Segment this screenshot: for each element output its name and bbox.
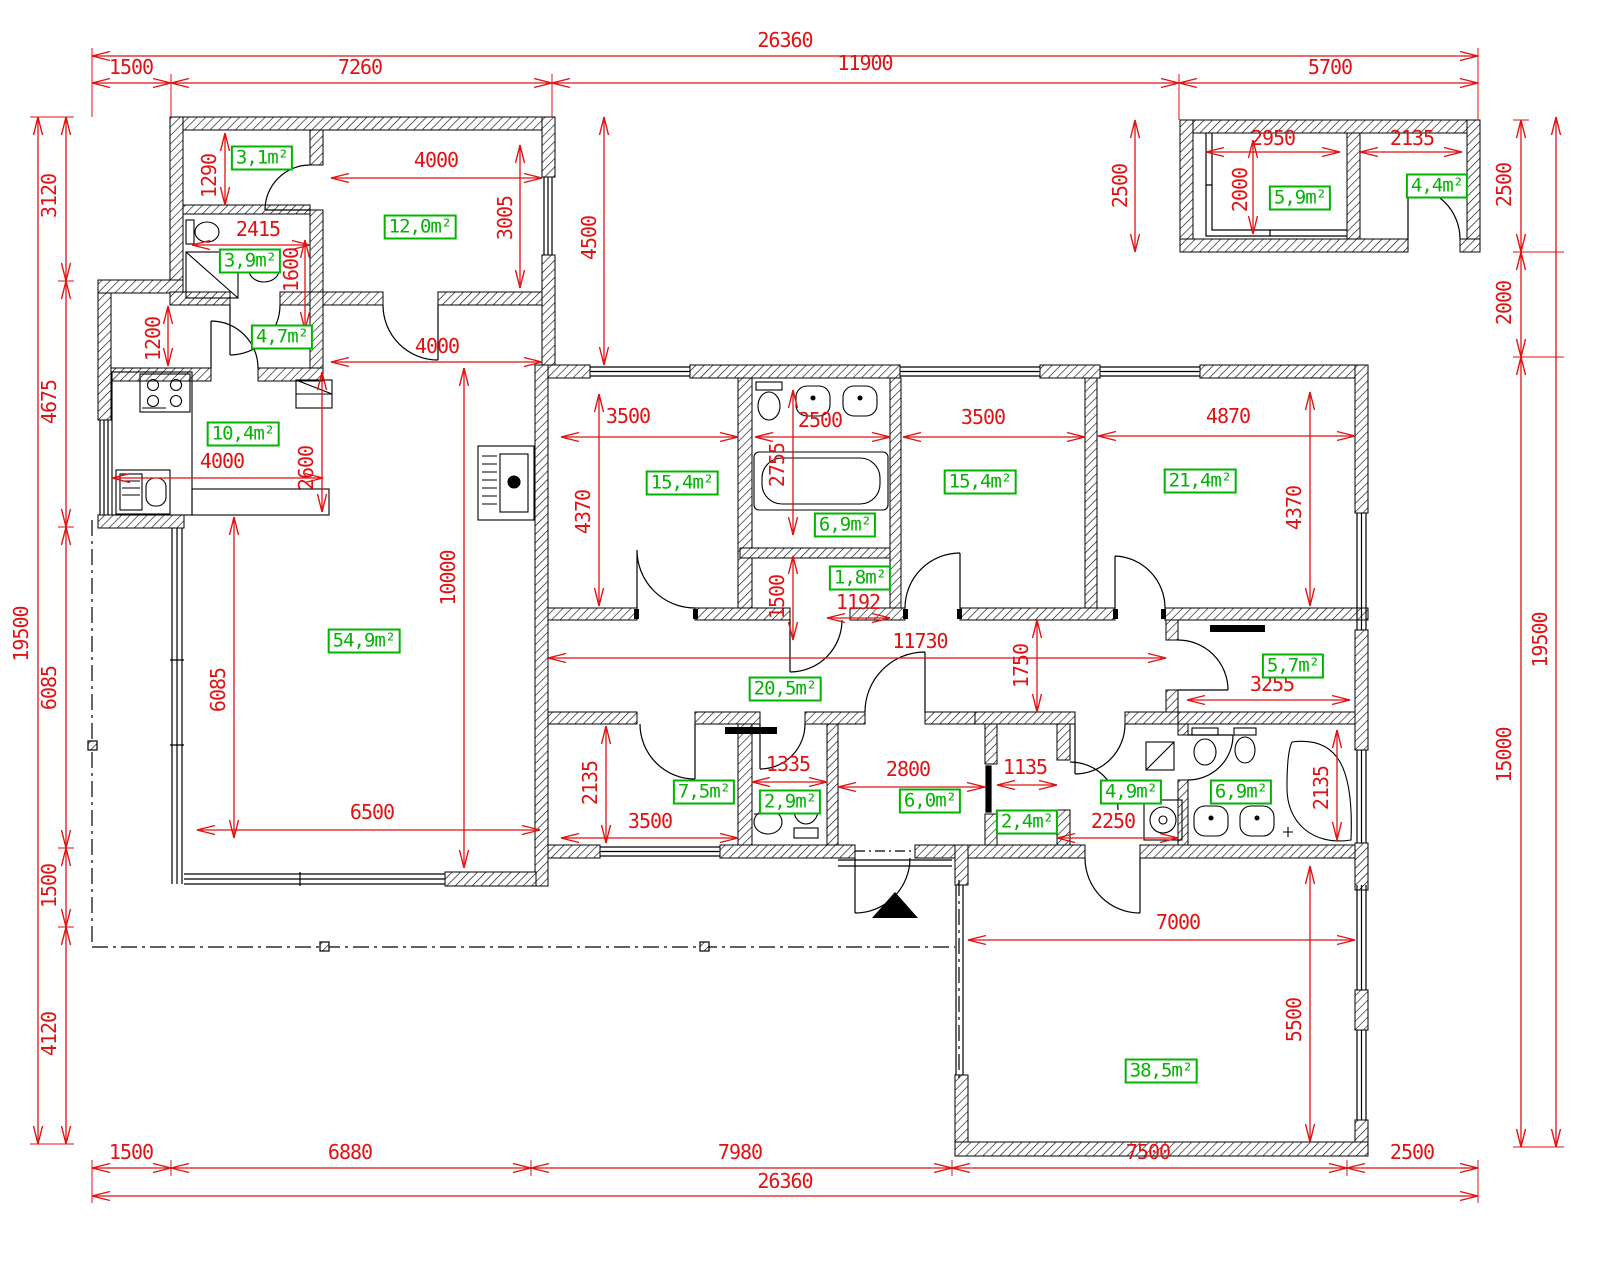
- door-vestibule-corridor: [865, 652, 925, 712]
- area-annex-b: 4,4m²: [1406, 174, 1468, 199]
- dim-top-7260: 7260: [338, 57, 382, 77]
- cabinet-hall49: [1146, 742, 1174, 770]
- dim-bed2-3500: 3500: [961, 407, 1005, 427]
- area-pantry: 3,1m²: [231, 146, 293, 171]
- area-room75: 7,5m²: [673, 780, 735, 805]
- dim-bottom-6880: 6880: [328, 1142, 372, 1162]
- dim-block-2415: 2415: [236, 219, 280, 239]
- door-bed2: [905, 553, 960, 608]
- dim-living-6500: 6500: [350, 802, 394, 822]
- dim-annex-2500: 2500: [1110, 164, 1130, 208]
- dim-room75-2135: 2135: [580, 761, 600, 805]
- dim-room24-1135: 1135: [1003, 757, 1047, 777]
- sink2-bath2: [843, 386, 877, 416]
- dim-bath2-2135: 2135: [1311, 766, 1331, 810]
- area-bed2: 15,4m²: [944, 470, 1017, 495]
- bidet: [1234, 728, 1256, 763]
- area-bath3: 6,9m²: [1210, 780, 1272, 805]
- toilet-bath2: [756, 382, 782, 420]
- shelf-symbol: [296, 380, 332, 408]
- area-room24: 2,4m²: [996, 810, 1058, 835]
- dim-garage-5500: 5500: [1284, 998, 1304, 1042]
- dim-corridor-1750: 1750: [1011, 644, 1031, 688]
- door-closet: [790, 620, 842, 672]
- area-hall: 4,7m²: [251, 325, 313, 350]
- dim-bottom-1500: 1500: [109, 1142, 153, 1162]
- dim-bottom-2500: 2500: [1390, 1142, 1434, 1162]
- dim-room75-3500: 3500: [628, 811, 672, 831]
- dim-bath-2500: 2500: [798, 410, 842, 430]
- dim-closet-1500: 1500: [767, 575, 787, 619]
- dim-living-10000: 10000: [438, 550, 458, 605]
- dim-kitchen-2600: 2600: [296, 446, 316, 490]
- pocket-door: [986, 766, 991, 812]
- dim-bottom-7980: 7980: [718, 1142, 762, 1162]
- sink1-bath3: [1194, 806, 1228, 836]
- dim-bottom-total: 26360: [757, 1171, 812, 1191]
- dim-block-4000: 4000: [414, 150, 458, 170]
- dim-left-6085: 6085: [39, 666, 59, 710]
- dim-left-1500: 1500: [39, 864, 59, 908]
- door-bed1: [637, 550, 695, 608]
- area-hall2: 4,9m²: [1100, 780, 1162, 805]
- dim-right-2500: 2500: [1494, 163, 1514, 207]
- dim-left-3120: 3120: [39, 174, 59, 218]
- dim-annex-2950: 2950: [1251, 128, 1295, 148]
- dim-bath-2755: 2755: [767, 443, 787, 487]
- dim-block-1600: 1600: [281, 248, 301, 292]
- dim-vest-2800: 2800: [886, 759, 930, 779]
- dim-annex-2135: 2135: [1390, 128, 1434, 148]
- area-room57: 5,7m²: [1262, 654, 1324, 679]
- dim-block-4500: 4500: [579, 216, 599, 260]
- toilet-bath3: [1192, 728, 1218, 765]
- dim-bottom-7500: 7500: [1126, 1142, 1170, 1162]
- area-room12: 12,0m²: [384, 215, 457, 240]
- sink2-bath3: [1240, 806, 1274, 836]
- dim-top-11900: 11900: [837, 53, 892, 73]
- dim-right-total: 19500: [1530, 612, 1550, 667]
- floor-plan: 26360 1500 7260 11900 5700 1500 6880 798…: [0, 0, 1600, 1280]
- dim-hall-1200: 1200: [143, 317, 163, 361]
- area-corridor: 20,5m²: [749, 677, 822, 702]
- dim-bed1-3500: 3500: [606, 406, 650, 426]
- dim-top-5700: 5700: [1308, 57, 1352, 77]
- area-closet: 1,8m²: [829, 566, 891, 591]
- floorplan-canvas: [0, 0, 1600, 1280]
- washer: [1144, 800, 1182, 840]
- dim-left-4675: 4675: [39, 380, 59, 424]
- dim-wc-1335: 1335: [766, 754, 810, 774]
- dim-annex-2000: 2000: [1230, 168, 1250, 212]
- door-garage: [1085, 858, 1140, 913]
- area-wc: 2,9m²: [759, 790, 821, 815]
- toilet-bath1: [186, 220, 219, 244]
- area-living: 54,9m²: [328, 629, 401, 654]
- dim-left-total: 19500: [11, 606, 31, 661]
- dim-hall49-2250: 2250: [1091, 811, 1135, 831]
- door-pantry: [265, 165, 310, 210]
- dim-block-1290: 1290: [199, 154, 219, 198]
- area-bath2: 6,9m²: [814, 513, 876, 538]
- door-bed3: [1115, 556, 1165, 608]
- entrance-arrow: [872, 892, 918, 918]
- dim-garage-7000: 7000: [1156, 912, 1200, 932]
- dim-right-2000: 2000: [1494, 281, 1514, 325]
- area-garage: 38,5m²: [1125, 1059, 1198, 1084]
- area-bed1: 15,4m²: [646, 471, 719, 496]
- area-kitchen: 10,4m²: [207, 422, 280, 447]
- dim-top-1500: 1500: [109, 57, 153, 77]
- area-bath1: 3,9m²: [219, 249, 281, 274]
- dim-hall-4000: 4000: [415, 336, 459, 356]
- dim-left-4120: 4120: [39, 1012, 59, 1056]
- fireplace: [478, 446, 534, 520]
- area-bed3: 21,4m²: [1164, 469, 1237, 494]
- dim-right-15000: 15000: [1494, 727, 1514, 782]
- dim-bed1-4370: 4370: [573, 490, 593, 534]
- door-room57: [1178, 640, 1228, 690]
- area-vestibule: 6,0m²: [899, 789, 961, 814]
- area-annex-a: 5,9m²: [1269, 186, 1331, 211]
- dim-top-total: 26360: [757, 30, 812, 50]
- fixtures: [112, 220, 1351, 841]
- dim-block-3005: 3005: [495, 196, 515, 240]
- dim-kitchen-4000: 4000: [200, 451, 244, 471]
- door-room75: [640, 724, 695, 779]
- kitchen-sink: [116, 470, 170, 514]
- dim-bed3-4870: 4870: [1206, 406, 1250, 426]
- dim-closet-1192: 1192: [836, 592, 880, 612]
- dim-corridor-11730: 11730: [892, 631, 947, 651]
- door-hall49: [1075, 724, 1125, 774]
- dim-bed3-4370: 4370: [1284, 486, 1304, 530]
- dim-living-6085: 6085: [208, 668, 228, 712]
